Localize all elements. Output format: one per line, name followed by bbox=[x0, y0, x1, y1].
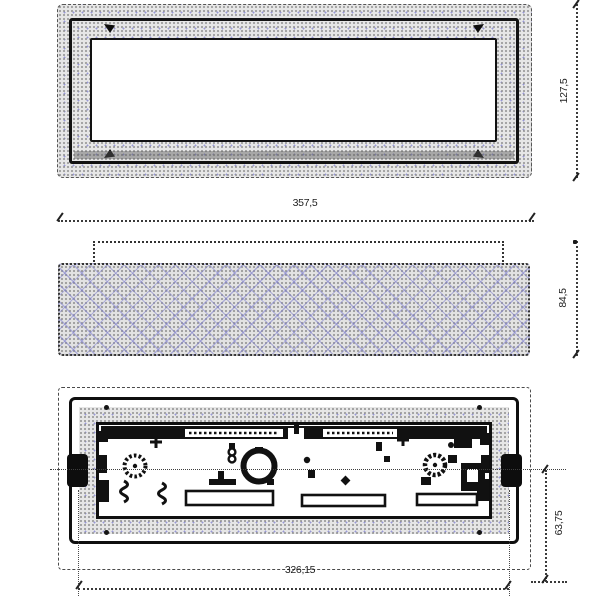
dim-back-half-height-line bbox=[545, 470, 547, 582]
gasket-dot bbox=[477, 530, 482, 535]
side-view-body bbox=[58, 263, 530, 356]
back-view-inner-frame bbox=[96, 422, 492, 519]
mounting-lug-right bbox=[501, 454, 522, 487]
front-view bbox=[57, 4, 532, 178]
front-view-shadow-strip bbox=[74, 151, 514, 159]
dim-back-width-line bbox=[78, 588, 509, 590]
dim-side-height-line bbox=[576, 241, 578, 356]
dim-back-width-label: 326,15 bbox=[250, 563, 350, 577]
dim-front-height-label: 127,5 bbox=[557, 61, 571, 121]
back-view bbox=[58, 387, 531, 570]
ext-line-left bbox=[78, 490, 79, 596]
back-view-components bbox=[99, 425, 489, 516]
dim-back-half-height-hook bbox=[531, 581, 567, 583]
technical-drawing-canvas: 127,5 357,5 84,5 bbox=[0, 0, 600, 600]
dim-tick bbox=[572, 349, 579, 358]
dim-back-half-height-label: 63,75 bbox=[552, 493, 566, 553]
dim-front-width-line bbox=[58, 220, 534, 222]
dim-front-height-line bbox=[576, 4, 578, 178]
mounting-lug-left bbox=[67, 454, 88, 487]
dim-side-height-label: 84,5 bbox=[556, 268, 570, 328]
gasket-dot bbox=[104, 405, 109, 410]
gasket-dot bbox=[477, 405, 482, 410]
gasket-dot bbox=[104, 530, 109, 535]
front-view-window bbox=[90, 38, 497, 142]
front-view-frame bbox=[69, 18, 519, 164]
dim-end-dot bbox=[573, 240, 577, 244]
dim-tick bbox=[572, 172, 579, 181]
back-view-frame bbox=[69, 397, 519, 544]
back-view-centerline bbox=[50, 469, 566, 470]
side-view-flange bbox=[93, 241, 504, 265]
dim-front-width-label: 357,5 bbox=[255, 196, 355, 210]
